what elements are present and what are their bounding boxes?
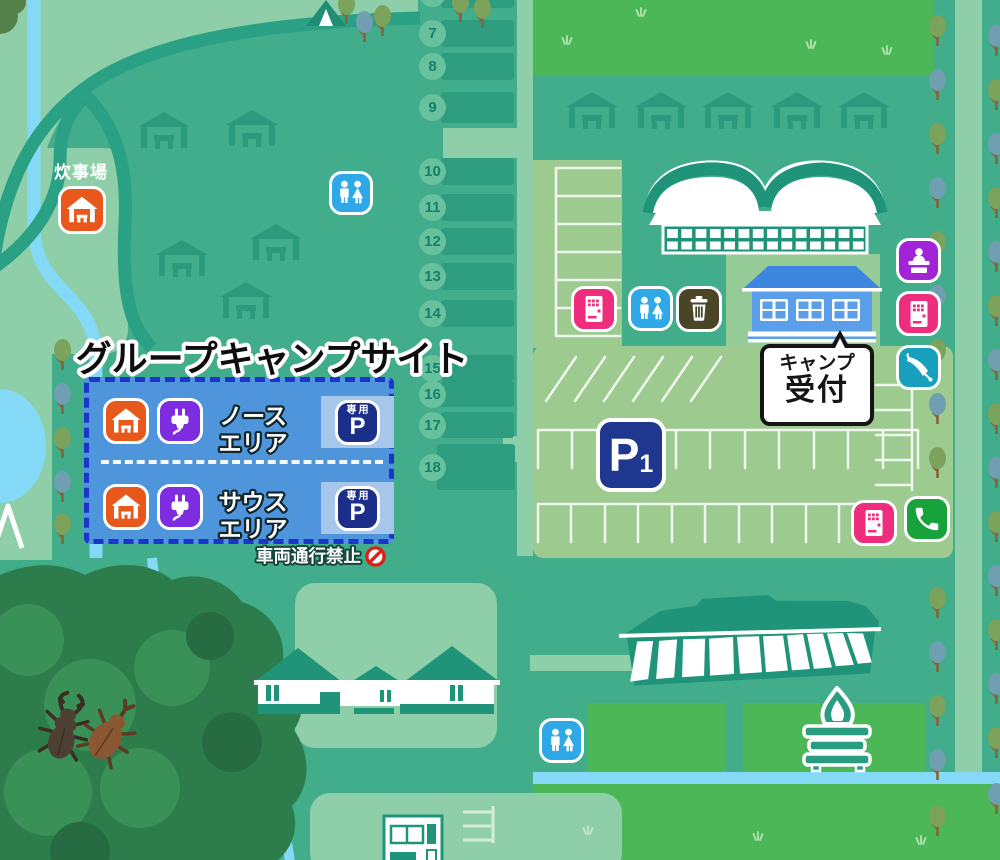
north-area-label: ノース エリア bbox=[193, 394, 313, 472]
page-title: グループキャンプサイト bbox=[76, 338, 469, 379]
north-area-line1: ノース bbox=[219, 403, 287, 429]
reception-desk-glyph bbox=[903, 245, 935, 277]
toilet-glyph bbox=[636, 294, 666, 324]
site-number: 11 bbox=[419, 194, 446, 221]
site-number: 8 bbox=[419, 53, 446, 80]
cooking-shelter-icon bbox=[103, 484, 149, 530]
reception-line2: 受付 bbox=[764, 375, 870, 407]
river-horizontal bbox=[533, 772, 1000, 784]
vending-machine-icon bbox=[896, 291, 941, 336]
north-area-line2: エリア bbox=[219, 430, 288, 456]
site-number: 13 bbox=[419, 263, 446, 290]
umbrella-glyph bbox=[903, 352, 935, 384]
site-number: 17 bbox=[419, 412, 446, 439]
region-field-1 bbox=[587, 703, 726, 773]
site-number: 14 bbox=[419, 300, 446, 327]
p1-letter: P bbox=[609, 432, 640, 478]
site-number: 10 bbox=[419, 158, 446, 185]
group-camp-site-box: ノース エリア サウス エリア 専用 P 専用 P bbox=[84, 377, 394, 544]
parking-p1-sign: P 1 bbox=[596, 418, 666, 492]
reserved-p: P bbox=[349, 502, 365, 525]
shelter-glyph bbox=[110, 405, 142, 437]
no-vehicles-label: 車両通行禁止 bbox=[254, 542, 366, 570]
cooking-area-label: 炊事場 bbox=[54, 158, 108, 183]
south-area-line1: サウス bbox=[219, 489, 288, 515]
reception-building bbox=[742, 266, 882, 343]
reserved-parking-icon: 専用 P bbox=[335, 486, 380, 531]
vending-machine-icon bbox=[851, 500, 897, 546]
toilet-icon bbox=[329, 171, 373, 215]
vending-machine-icon bbox=[571, 286, 617, 332]
reception-line1: キャンプ bbox=[764, 353, 870, 375]
region-grass-field-top bbox=[533, 0, 933, 76]
phone-glyph bbox=[912, 504, 942, 534]
camp-reception-bubble: キャンプ 受付 bbox=[760, 344, 874, 426]
reserved-parking-icon: 専用 P bbox=[335, 400, 380, 445]
no-entry-icon bbox=[364, 545, 387, 568]
trash-glyph bbox=[683, 293, 715, 325]
site-number: 7 bbox=[419, 20, 446, 47]
south-area-line2: エリア bbox=[219, 516, 288, 542]
reception-desk-icon bbox=[896, 238, 941, 283]
plug-glyph bbox=[164, 491, 196, 523]
plug-glyph bbox=[164, 405, 196, 437]
site-number: 16 bbox=[419, 381, 446, 408]
phone-icon bbox=[904, 496, 950, 542]
vending-hut-building bbox=[384, 816, 442, 860]
small-path bbox=[530, 655, 636, 671]
site-number: 12 bbox=[419, 228, 446, 255]
toilet-icon bbox=[539, 718, 584, 763]
site-number: 9 bbox=[419, 94, 446, 121]
campsite-map: { "title": "グループキャンプサイト", "group_site": … bbox=[0, 0, 1000, 860]
cooking-shelter-icon bbox=[103, 398, 149, 444]
campsite-pads bbox=[437, 0, 515, 490]
reserved-p: P bbox=[349, 416, 365, 439]
trash-icon bbox=[676, 286, 722, 332]
no-vehicles-text: 車両通行禁止 bbox=[256, 546, 361, 566]
shelter-glyph bbox=[110, 491, 142, 523]
toilet-glyph bbox=[336, 178, 366, 208]
vending-glyph bbox=[903, 298, 935, 330]
vending-glyph bbox=[578, 293, 610, 325]
toilet-icon bbox=[628, 286, 673, 331]
road-vertical-right bbox=[955, 0, 982, 776]
p1-number: 1 bbox=[639, 452, 653, 477]
road-vertical-center bbox=[517, 0, 533, 556]
toilet-glyph bbox=[547, 726, 577, 756]
vending-glyph bbox=[858, 507, 890, 539]
cooking-shelter-icon bbox=[58, 186, 106, 234]
site-number: 18 bbox=[419, 454, 446, 481]
shelter-glyph bbox=[65, 193, 99, 227]
umbrella-icon bbox=[896, 345, 941, 390]
road-connector-upper bbox=[443, 128, 533, 158]
group-site-title: グループキャンプサイト bbox=[60, 334, 484, 384]
